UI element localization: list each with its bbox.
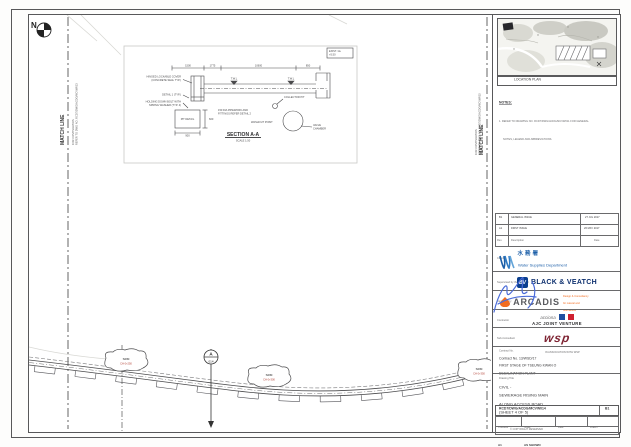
copyright-strip: © COPYRIGHT RESERVED (495, 426, 619, 435)
note-line-1: 1. REFER TO DRAWING NO. RCD7/DWG/ACDG/MC… (499, 120, 589, 123)
callout-bubble-3: SRM CH 0+350 (458, 359, 491, 381)
label-washout: WASHOUT POINT (251, 120, 273, 124)
notes-heading: NOTES: (499, 101, 512, 105)
location-plan-map (497, 18, 617, 76)
dim-2: 1775 (210, 64, 216, 68)
section-marker-ref: 014 (208, 360, 213, 364)
revision-row: A1 FIRST ISSUE 26 MAY 2017 (496, 225, 618, 236)
rev-header-cell: Rev. (497, 239, 502, 242)
callout-3-line2: CH 0+350 (473, 372, 485, 376)
section-detail-panel: EXIST. GL +5.50 1500 1775 10600 850 HING… (124, 46, 357, 163)
match-line-left-note1: FOR CONTINUATION (71, 119, 75, 145)
copyright: © COPYRIGHT RESERVED (496, 428, 557, 431)
contract-no: Contract No. 13/WSD/17 (499, 358, 536, 360)
callout-2-line2: CH 0+300 (263, 378, 275, 382)
section-arrow-icon (208, 421, 214, 428)
level-box-line1: EXIST. GL (329, 49, 342, 53)
callout-bubble-2: SRM CH 0+300 (248, 365, 291, 387)
callout-1-line2: CH 0+250 (120, 362, 132, 366)
pit-dim-h: 600 (209, 117, 214, 121)
dim-1: 1500 (185, 64, 191, 68)
callout-1-line1: SRM (123, 357, 130, 361)
level-1: T.W.L (231, 77, 238, 81)
label-pit: PIT DETAIL (181, 117, 195, 121)
sheet-info-grid: Checked A1 Scale AS SHOWN Date Drawn (495, 416, 619, 426)
note-line-2: NOTES, LEGEND AND ABBREVIATIONS. (503, 138, 552, 141)
match-line-left-title: MATCH LINE (60, 114, 66, 145)
match-line-left-note2: REFER TO DWG NO. RCD7/DWG/ACDG/MCVW013 (75, 83, 79, 145)
callout-3-line1: SRM (476, 367, 483, 371)
label-collector: COLLECTOR PIT (284, 95, 305, 99)
label-cover-1: HINGED LOCKABLE COVER (147, 75, 182, 79)
rev-date-cell: 26 MAY 2017 (584, 227, 599, 230)
rev-desc-cell: FIRST ISSUE (511, 227, 527, 230)
revision-table: B1 GENERAL ISSUE 27 JUL 2017 A1 FIRST IS… (495, 213, 619, 247)
rev-date-cell: 27 JUL 2017 (585, 216, 600, 219)
callout-bubble-1: SRM CH 0+250 (105, 349, 148, 371)
rev-header-cell: Description (511, 239, 524, 242)
callout-2-line1: SRM (266, 373, 273, 377)
label-bolt-1: HOLDING DOWN BOLT WITH (146, 100, 181, 104)
match-line-right-note1: FOR CONTINUATION (474, 129, 478, 155)
main-drawing-area: N MATCH LINE FOR CONTINUATION REFER TO D… (29, 15, 491, 432)
pit-dim-w: 900 (185, 134, 190, 138)
dim-4: 850 (306, 64, 311, 68)
title-caption: Drawing Title (499, 377, 514, 380)
dim-3: 10600 (255, 64, 263, 68)
ajc-blue-square-icon (559, 314, 565, 320)
contract-caption: Contract No. (499, 350, 514, 352)
level-2: T.W.L (288, 77, 295, 81)
section-title: SECTION A-A (227, 132, 260, 138)
title-line-1: CIVIL - (499, 386, 511, 389)
contract-line-1: FIRST STAGE OF TSEUNG KWAN O (499, 365, 556, 367)
arcadis-tagline-1: Design & Consultancy (563, 296, 589, 298)
signature-scribble (488, 266, 546, 322)
label-cover-2: (CONCRETE SEAL TYP.) (151, 78, 181, 82)
revision-header-row: Rev. Description Date (496, 236, 618, 247)
section-note-1: 150 DIA PIPEWORK AND (218, 108, 248, 112)
rev-cell: A1 (499, 227, 502, 230)
revision-code: B1 (605, 407, 609, 411)
wsd-name-cjk: 水務署 (518, 249, 616, 257)
drawing-number: RCD7/DWG/ACDG/MCVW014 (499, 407, 546, 411)
section-note-2: FITTINGS REFER DETAIL 2 (218, 112, 252, 116)
rev-cell: B1 (499, 216, 502, 219)
revision-row: B1 GENERAL ISSUE 27 JUL 2017 (496, 214, 618, 225)
label-bolt-2: SPRING WASHER (TYP. 4) (149, 103, 181, 107)
label-valve-2: CHAMBER (313, 127, 326, 131)
title-line-2: SEWERAGE RISING MAIN (499, 394, 548, 397)
north-arrow-icon: N (31, 21, 51, 37)
level-box-line2: +5.50 (329, 53, 336, 57)
location-plan-caption: LOCATION PLAN (498, 78, 557, 82)
drawing-sheet: N MATCH LINE FOR CONTINUATION REFER TO D… (0, 0, 631, 447)
label-valve-1: VALVE (313, 123, 321, 127)
match-line-right-note2: REFER TO DWG NO. RCD7/DWG/ACDG/MCVW015 (478, 93, 482, 155)
north-label: N (31, 21, 37, 30)
drawing-number-row: RCD7/DWG/ACDG/MCVW014 B1 (495, 405, 619, 416)
section-scale: SCALE 1:50 (236, 139, 251, 143)
label-detail: DETAIL 1 (TYP.) (162, 93, 181, 97)
title-block: LOCATION PLAN NOTES: 1. REFER TO DRAWING… (492, 15, 620, 432)
rev-header-cell: Date (594, 239, 599, 242)
rev-desc-cell: GENERAL ISSUE (511, 216, 532, 219)
location-plan-caption-strip: LOCATION PLAN (497, 76, 617, 86)
notes-section: NOTES: 1. REFER TO DRAWING NO. RCD7/DWG/… (499, 93, 617, 147)
arcadis-tagline-2: for natural and (563, 303, 580, 305)
ajc-red-square-icon (568, 314, 574, 320)
